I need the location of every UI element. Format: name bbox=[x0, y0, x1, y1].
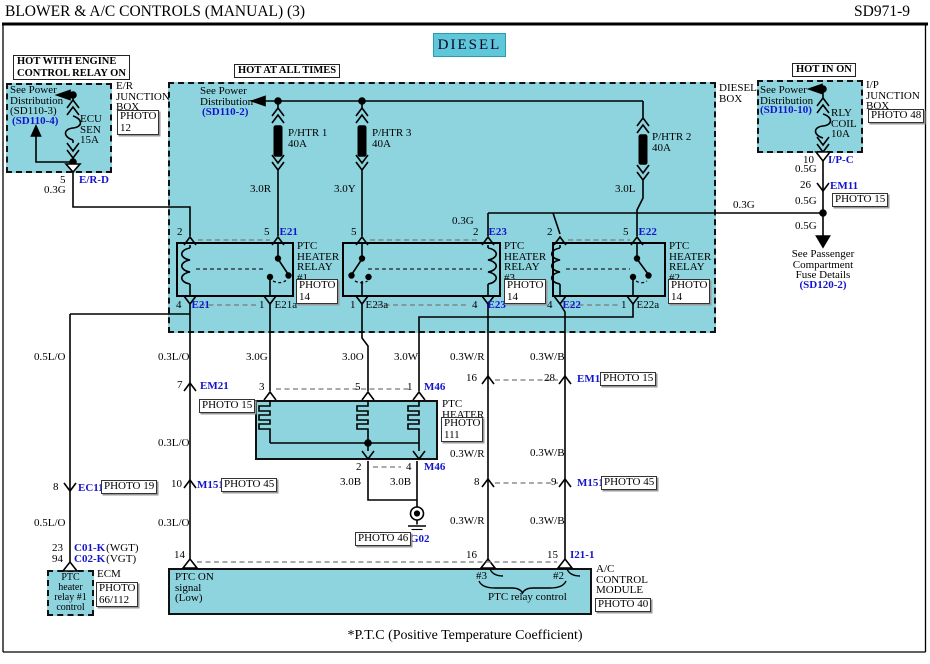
conn-m46-bot: M46 bbox=[424, 462, 445, 473]
r2-pin1-e22a: 1E22a bbox=[621, 300, 659, 311]
r3-pin5: 5 bbox=[351, 227, 357, 238]
photo-15-r: PHOTO 15 bbox=[832, 193, 888, 207]
see-power-center-ref: (SD110-2) bbox=[202, 107, 248, 118]
pin-9: 9 bbox=[551, 477, 557, 488]
wire-30l: 3.0L bbox=[615, 184, 635, 195]
conn-m151-l: M151 bbox=[197, 480, 224, 491]
r1-pin2: 2 bbox=[177, 227, 183, 238]
see-passenger-ref: (SD120-2) bbox=[779, 280, 867, 291]
conn-g02: G02 bbox=[410, 534, 430, 545]
ptc-relay-control: PTC relay control bbox=[488, 592, 567, 603]
wire-03wr-2: 0.3W/R bbox=[450, 449, 485, 460]
pin-8-r: 8 bbox=[474, 477, 480, 488]
m46-pin1: 1 bbox=[407, 382, 413, 393]
wire-05lo-2: 0.5L/O bbox=[34, 518, 65, 529]
photo-14-r1: PHOTO 14 bbox=[296, 279, 338, 304]
photo-40: PHOTO 40 bbox=[595, 598, 651, 612]
conn-i21-1: I21-1 bbox=[570, 550, 594, 561]
hot-engine-label: HOT WITH ENGINE CONTROL RELAY ON bbox=[13, 55, 130, 80]
footnote: *P.T.C (Positive Temperature Coefficient… bbox=[290, 628, 640, 644]
pin-94: 94 bbox=[52, 554, 63, 565]
see-power-center: See Power Distribution bbox=[200, 86, 253, 107]
pin-14: 14 bbox=[174, 550, 185, 561]
photo-45-l: PHOTO 45 bbox=[221, 478, 277, 492]
pin-28: 28 bbox=[544, 373, 555, 384]
wiring-diagram-page: BLOWER & A/C CONTROLS (MANUAL) (3) SD971… bbox=[0, 0, 930, 664]
relay1-label: PTC HEATER RELAY #1 bbox=[297, 241, 339, 283]
acm-label: A/C CONTROL MODULE bbox=[596, 564, 648, 596]
conn-c01k: C01-K(WGT) bbox=[74, 543, 139, 554]
terminal-hash3: #3 bbox=[476, 571, 487, 582]
heater-feed-wiring bbox=[264, 304, 633, 400]
er-junction-label: E/R JUNCTION BOX bbox=[116, 81, 170, 113]
wire-03wr-1: 0.3W/R bbox=[450, 352, 485, 363]
fuse-rly-coil-label: RLY COIL 10A bbox=[831, 108, 857, 140]
pin-16-bot: 16 bbox=[466, 550, 477, 561]
r3-pin1-e23a: 1E23a bbox=[350, 300, 388, 311]
photo-45-r: PHOTO 45 bbox=[601, 476, 657, 490]
wire-30w: 3.0W bbox=[394, 352, 418, 363]
photo-19: PHOTO 19 bbox=[101, 480, 157, 494]
see-power-right-ref: (SD110-10) bbox=[760, 105, 812, 116]
r2-pin2: 2 bbox=[547, 227, 553, 238]
wire-03wr-3: 0.3W/R bbox=[450, 516, 485, 527]
conn-erd: E/R-D bbox=[79, 175, 109, 186]
see-power-left-ref: (SD110-4) bbox=[12, 116, 58, 127]
hot-all-times-label: HOT AT ALL TIMES bbox=[234, 64, 340, 78]
module-symbols bbox=[479, 569, 580, 593]
r2-pin4-e22: 4E22 bbox=[547, 300, 581, 311]
pin-7: 7 bbox=[177, 380, 183, 391]
pin-26: 26 bbox=[800, 180, 811, 191]
photo-15-em11: PHOTO 15 bbox=[600, 372, 656, 386]
wire-05g-1: 0.5G bbox=[795, 164, 817, 175]
wire-30g: 3.0G bbox=[246, 352, 268, 363]
photo-12: PHOTO 12 bbox=[117, 110, 159, 135]
conn-ipc: I/P-C bbox=[828, 155, 854, 166]
wire-03g-mid: 0.3G bbox=[452, 216, 474, 227]
r3-pin2-e23: 2E23 bbox=[473, 227, 507, 238]
r1-pin5-e21: 5E21 bbox=[264, 227, 298, 238]
r2-pin5-e22: 5E22 bbox=[623, 227, 657, 238]
wire-05lo-1: 0.5L/O bbox=[34, 352, 65, 363]
photo-46: PHOTO 46 bbox=[355, 532, 411, 546]
page-code: SD971-9 bbox=[854, 3, 910, 21]
heater-elements bbox=[259, 400, 425, 459]
relay3-label: PTC HEATER RELAY #3 bbox=[504, 241, 546, 283]
pin-15: 15 bbox=[547, 550, 558, 561]
relay2-symbol bbox=[552, 240, 651, 559]
pin-16-top: 16 bbox=[466, 373, 477, 384]
wire-30r: 3.0R bbox=[250, 184, 271, 195]
see-power-left: See Power Distribution (SD110-3) bbox=[10, 85, 63, 117]
photo-15-em21: PHOTO 15 bbox=[199, 399, 255, 413]
photo-111: PHOTO 111 bbox=[441, 417, 483, 442]
wire-03wb-1: 0.3W/B bbox=[530, 352, 565, 363]
diesel-banner: DIESEL bbox=[433, 33, 506, 57]
wire-03wb-2: 0.3W/B bbox=[530, 448, 565, 459]
m46-pin2: 2 bbox=[356, 462, 362, 473]
wire-03g-right: 0.3G bbox=[733, 200, 755, 211]
pin-10-m151: 10 bbox=[171, 479, 182, 490]
page-title: BLOWER & A/C CONTROLS (MANUAL) (3) bbox=[5, 3, 305, 21]
hot-in-on-label: HOT IN ON bbox=[792, 63, 856, 77]
conn-c02k: C02-K(VGT) bbox=[74, 554, 136, 565]
see-passenger: See Passenger Compartment Fuse Details bbox=[779, 249, 867, 281]
relay2-label: PTC HEATER RELAY #2 bbox=[669, 241, 711, 283]
photo-66-112: PHOTO 66/112 bbox=[96, 582, 138, 607]
conn-ec11: EC11 bbox=[78, 483, 104, 494]
fuse-phtr3-label: P/HTR 3 40A bbox=[372, 128, 411, 149]
wire-30y: 3.0Y bbox=[334, 184, 356, 195]
r1-pin4-e21: 4E21 bbox=[176, 300, 210, 311]
photo-14-r2: PHOTO 14 bbox=[668, 279, 710, 304]
wire-05g-3: 0.5G bbox=[795, 221, 817, 232]
conn-em21: EM21 bbox=[200, 381, 229, 392]
ground-wiring bbox=[368, 461, 426, 530]
wire-03lo-2: 0.3L/O bbox=[158, 438, 189, 449]
fuse-phtr2-label: P/HTR 2 40A bbox=[652, 132, 691, 153]
wire-30o: 3.0O bbox=[342, 352, 364, 363]
wire-30b-2: 3.0B bbox=[390, 477, 411, 488]
conn-m46-top: M46 bbox=[424, 382, 445, 393]
wire-03g-left: 0.3G bbox=[44, 185, 66, 196]
r1-pin1-e21a: 1E21a bbox=[259, 300, 297, 311]
r3-pin4-e23: 4E23 bbox=[472, 300, 506, 311]
wire-05g-2: 0.5G bbox=[795, 196, 817, 207]
power-bus-wiring bbox=[252, 97, 649, 246]
fuse-ecu-sen-label: ECU SEN 15A bbox=[80, 114, 102, 146]
terminal-hash2: #2 bbox=[553, 571, 564, 582]
wire-30b-1: 3.0B bbox=[340, 477, 361, 488]
conn-m151-r: M151 bbox=[577, 478, 604, 489]
ip-junction-label: I/P JUNCTION BOX bbox=[866, 80, 920, 112]
diesel-box-label: DIESEL BOX bbox=[719, 83, 757, 104]
ptc-on-signal: PTC ON signal (Low) bbox=[175, 572, 214, 604]
wire-03wb-3: 0.3W/B bbox=[530, 516, 565, 527]
ecm-label: ECM bbox=[97, 569, 121, 580]
wire-03lo-1: 0.3L/O bbox=[158, 352, 189, 363]
pin-8-ec11: 8 bbox=[53, 482, 59, 493]
ptc-control-label: PTC heater relay #1 control bbox=[49, 573, 92, 613]
m46-pin3: 3 bbox=[259, 382, 265, 393]
pin-23: 23 bbox=[52, 543, 63, 554]
rails bbox=[63, 304, 572, 571]
photo-14-r3: PHOTO 14 bbox=[504, 279, 546, 304]
conn-em11-r: EM11 bbox=[830, 181, 858, 192]
wire-03lo-3: 0.3L/O bbox=[158, 518, 189, 529]
photo-48: PHOTO 48 bbox=[868, 109, 924, 123]
m46-pin4: 4 bbox=[406, 462, 412, 473]
fuse-phtr1-label: P/HTR 1 40A bbox=[288, 128, 327, 149]
m46-pin5: 5 bbox=[355, 382, 361, 393]
see-power-right: See Power Distribution bbox=[760, 85, 813, 106]
